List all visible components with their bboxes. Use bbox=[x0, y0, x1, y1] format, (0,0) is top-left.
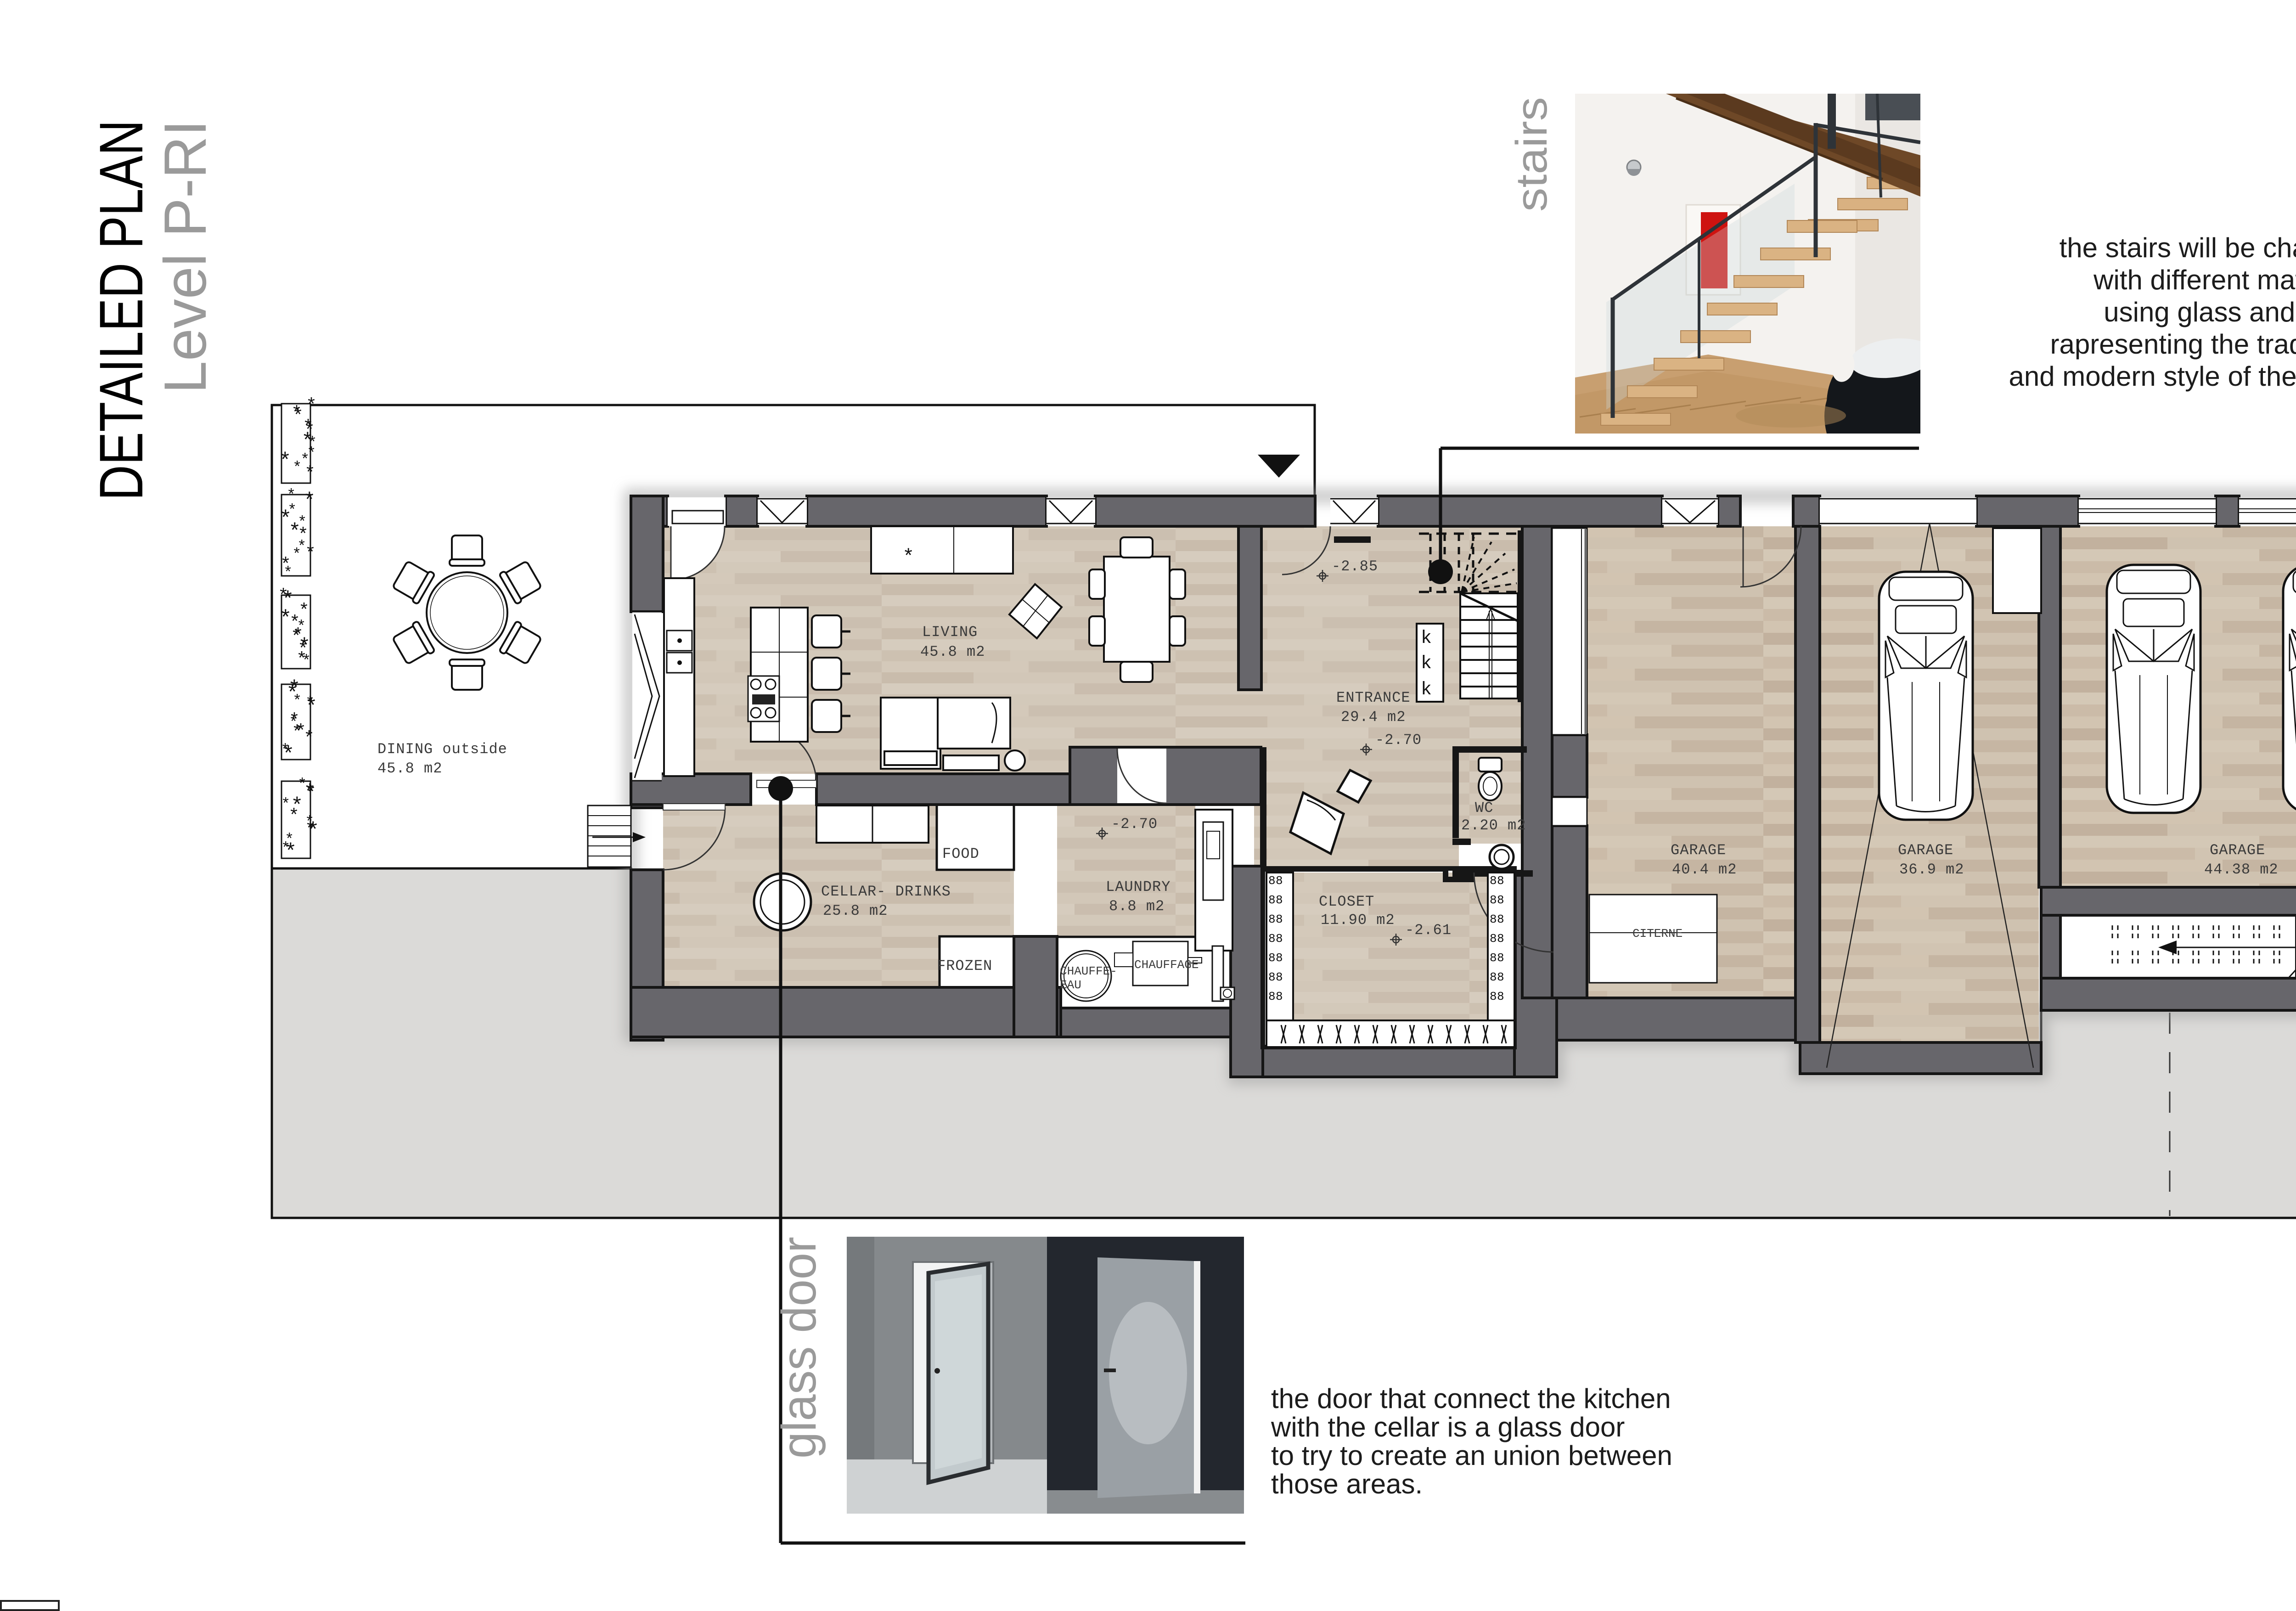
svg-text:CHAUFFAGE: CHAUFFAGE bbox=[1134, 958, 1199, 972]
svg-text:CHAUFFE-: CHAUFFE- bbox=[1060, 964, 1117, 978]
svg-text:the stairs will be changed,: the stairs will be changed, bbox=[2060, 232, 2296, 263]
svg-text:8: 8 bbox=[1276, 932, 1283, 946]
svg-text:-2.85: -2.85 bbox=[1332, 558, 1378, 575]
svg-text:8: 8 bbox=[1268, 990, 1276, 1003]
svg-text:8: 8 bbox=[1268, 874, 1276, 888]
svg-text:*: * bbox=[307, 819, 320, 843]
svg-text:DINING outside: DINING outside bbox=[377, 741, 507, 758]
svg-text:2.20 m2: 2.20 m2 bbox=[1461, 817, 1526, 834]
svg-text:with different materials,: with different materials, bbox=[2093, 265, 2296, 295]
svg-text:DETAILED PLAN: DETAILED PLAN bbox=[87, 120, 156, 501]
svg-text:and modern style of the whole: and modern style of the whole bbox=[2009, 361, 2296, 392]
svg-text:8: 8 bbox=[1497, 990, 1504, 1003]
svg-text:8: 8 bbox=[1268, 970, 1276, 984]
svg-text:*: * bbox=[288, 806, 299, 827]
svg-text:*: * bbox=[304, 781, 316, 805]
svg-text:*: * bbox=[302, 653, 311, 670]
svg-text:8: 8 bbox=[1490, 990, 1497, 1003]
svg-text:45.8 m2: 45.8 m2 bbox=[920, 643, 985, 660]
svg-text:8: 8 bbox=[1490, 874, 1497, 888]
svg-text:k: k bbox=[1421, 628, 1432, 649]
svg-text:29.4 m2: 29.4 m2 bbox=[1341, 709, 1406, 726]
svg-text:-2.70: -2.70 bbox=[1375, 732, 1422, 749]
svg-text:11.90 m2: 11.90 m2 bbox=[1321, 912, 1395, 929]
svg-text:using glass and wood,: using glass and wood, bbox=[2104, 297, 2296, 327]
svg-text:8: 8 bbox=[1490, 913, 1497, 926]
svg-text:GARAGE: GARAGE bbox=[2210, 842, 2265, 859]
svg-text:the door that connect the kitc: the door that connect the kitchen bbox=[1271, 1383, 1671, 1414]
svg-text:8: 8 bbox=[1490, 951, 1497, 965]
svg-text:CELLAR- DRINKS: CELLAR- DRINKS bbox=[821, 883, 951, 900]
svg-text:k: k bbox=[1421, 680, 1432, 700]
svg-text:LAUNDRY: LAUNDRY bbox=[1106, 879, 1171, 896]
svg-text:WC: WC bbox=[1475, 800, 1493, 817]
svg-text:8: 8 bbox=[1490, 970, 1497, 984]
svg-text:25.8 m2: 25.8 m2 bbox=[823, 902, 888, 919]
svg-text:*: * bbox=[283, 565, 293, 582]
svg-text:those areas.: those areas. bbox=[1271, 1469, 1423, 1499]
svg-text:*: * bbox=[305, 544, 316, 564]
svg-text:*: * bbox=[902, 546, 914, 569]
svg-text:8: 8 bbox=[1490, 893, 1497, 907]
svg-text:8: 8 bbox=[1490, 932, 1497, 946]
svg-text:CITERNE: CITERNE bbox=[1632, 927, 1683, 941]
svg-text:8: 8 bbox=[1276, 913, 1283, 926]
svg-text:*: * bbox=[282, 743, 295, 767]
svg-text:FROZEN: FROZEN bbox=[937, 958, 992, 974]
svg-text:-2.70: -2.70 bbox=[1111, 816, 1158, 833]
svg-text:CLOSET: CLOSET bbox=[1319, 893, 1374, 910]
svg-text:ENTRANCE: ENTRANCE bbox=[1336, 689, 1411, 706]
svg-text:44.38 m2: 44.38 m2 bbox=[2204, 861, 2279, 878]
svg-text:*: * bbox=[279, 450, 292, 473]
svg-text:8: 8 bbox=[1268, 932, 1276, 946]
svg-text:EAU: EAU bbox=[1060, 978, 1081, 992]
svg-text:with the cellar is a glass doo: with the cellar is a glass door bbox=[1271, 1412, 1625, 1442]
svg-text:Level P-RI: Level P-RI bbox=[152, 120, 219, 394]
svg-text:*: * bbox=[284, 840, 297, 864]
svg-text:*: * bbox=[293, 406, 304, 427]
svg-text:to try to create an union betw: to try to create an union between bbox=[1271, 1440, 1672, 1471]
svg-text:8: 8 bbox=[1497, 874, 1504, 888]
svg-text:rapresenting the traditional: rapresenting the traditional bbox=[2050, 329, 2296, 360]
svg-text:8: 8 bbox=[1276, 874, 1283, 888]
svg-text:LIVING: LIVING bbox=[922, 624, 978, 641]
svg-text:*: * bbox=[306, 396, 317, 417]
svg-text:*: * bbox=[304, 729, 315, 749]
svg-text:8: 8 bbox=[1268, 951, 1276, 965]
svg-text:*: * bbox=[303, 490, 316, 513]
svg-text:-2.61: -2.61 bbox=[1405, 922, 1452, 939]
svg-text:8: 8 bbox=[1497, 970, 1504, 984]
svg-text:*: * bbox=[293, 460, 302, 477]
svg-text:8: 8 bbox=[1276, 970, 1283, 984]
svg-text:8: 8 bbox=[1268, 913, 1276, 926]
svg-text:*: * bbox=[305, 695, 318, 719]
svg-text:8: 8 bbox=[1497, 893, 1504, 907]
svg-text:k: k bbox=[1421, 653, 1432, 674]
svg-text:GARAGE: GARAGE bbox=[1898, 842, 1953, 859]
svg-text:8: 8 bbox=[1497, 951, 1504, 965]
svg-text:*: * bbox=[293, 693, 302, 710]
svg-text:*: * bbox=[292, 546, 301, 564]
svg-text:8: 8 bbox=[1276, 893, 1283, 907]
svg-text:8: 8 bbox=[1497, 913, 1504, 926]
svg-text:glass door: glass door bbox=[772, 1237, 826, 1459]
svg-text:8: 8 bbox=[1276, 951, 1283, 965]
svg-text:8: 8 bbox=[1276, 990, 1283, 1003]
svg-text:45.8 m2: 45.8 m2 bbox=[377, 760, 442, 777]
svg-text:8: 8 bbox=[1268, 893, 1276, 907]
svg-text:40.4 m2: 40.4 m2 bbox=[1672, 861, 1737, 878]
svg-text:GARAGE: GARAGE bbox=[1671, 842, 1726, 859]
svg-text:*: * bbox=[304, 464, 315, 484]
svg-text:8: 8 bbox=[1497, 932, 1504, 946]
svg-text:8.8 m2: 8.8 m2 bbox=[1109, 898, 1165, 915]
svg-text:*: * bbox=[292, 723, 303, 744]
svg-text:36.9 m2: 36.9 m2 bbox=[1899, 861, 1964, 878]
svg-text:stairs: stairs bbox=[1507, 97, 1556, 212]
svg-text:FOOD: FOOD bbox=[942, 845, 979, 862]
